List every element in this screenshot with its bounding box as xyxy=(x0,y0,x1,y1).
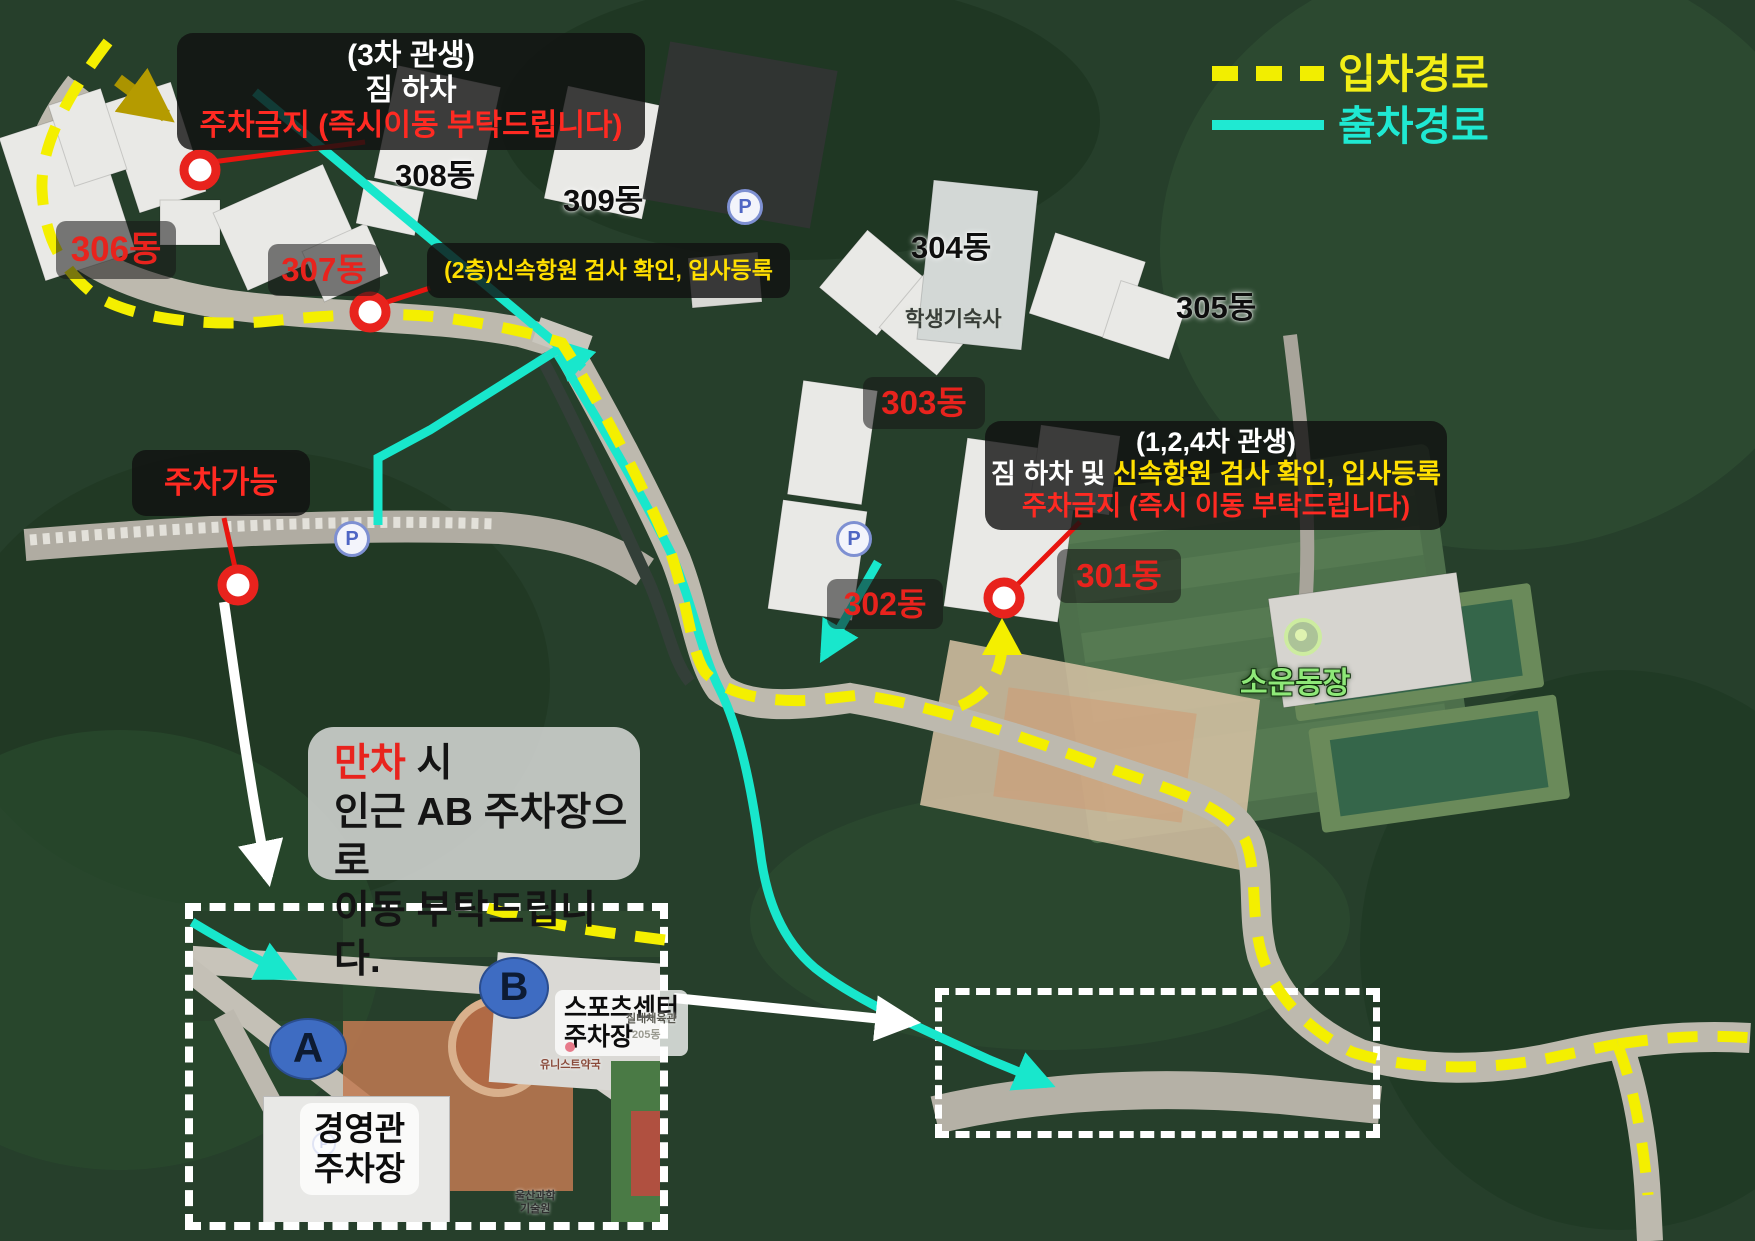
inset-pharmacy-label: 유니스트약국 xyxy=(540,1056,601,1072)
inset-univ-label: 울산과학 기술원 xyxy=(515,1190,555,1216)
campus-parking-map: 입차경로 출차경로 (3차 관생) 짐 하차 주차금지 (즉시이동 부탁드립니다… xyxy=(0,0,1755,1241)
legend-entry-line xyxy=(1212,66,1324,81)
legend-exit-label: 출차경로 xyxy=(1338,104,1489,148)
label-301: 301동 xyxy=(1057,549,1181,603)
note-124-line2b: 신속항원 검사 확인, 입사등록 xyxy=(1113,459,1441,489)
inset-mgmt-line1: 경영관 xyxy=(314,1109,405,1149)
note-2f-text: (2층)신속항원 검사 확인, 입사등록 xyxy=(444,257,773,283)
parking-icon-3: P xyxy=(334,521,370,557)
field-icon xyxy=(1284,618,1322,656)
inset-gym-label: 실내체육관 xyxy=(626,1010,677,1026)
label-308: 308동 xyxy=(395,150,475,195)
parking-icon-1: P xyxy=(727,189,763,225)
inset-mgmt-label: 경영관 주차장 xyxy=(300,1103,419,1195)
note-2f-box: (2층)신속항원 검사 확인, 입사등록 xyxy=(427,243,790,298)
inset-marker-b: B xyxy=(479,957,549,1019)
full-notice-line1: 만차 시 xyxy=(334,739,640,788)
inset-mgmt-line2: 주차장 xyxy=(314,1149,405,1189)
inset-205-label: 205동 xyxy=(632,1026,660,1042)
parking-ok-text: 주차가능 xyxy=(164,465,278,500)
field-icon-core xyxy=(1295,629,1307,641)
entry-arrowhead-301 xyxy=(982,618,1022,655)
note-124-line1: (1,2,4차 관생) xyxy=(985,426,1447,458)
label-304: 304동 xyxy=(911,222,991,267)
legend-entry-label: 입차경로 xyxy=(1338,52,1489,96)
note-3cha-line2: 짐 하차 xyxy=(177,73,645,108)
label-302: 302동 xyxy=(827,579,943,629)
parking-ok-box: 주차가능 xyxy=(132,450,310,516)
note-124-line2a: 짐 하차 및 xyxy=(991,459,1113,489)
full-notice-line2: 인근 AB 주차장으로 xyxy=(334,788,640,886)
full-notice-rest: 시 xyxy=(406,742,453,785)
label-dorm-area: 학생기숙사 xyxy=(905,303,1002,333)
full-notice-word: 만차 xyxy=(334,742,406,785)
leader-lines xyxy=(212,142,1080,586)
parking-icon-2: P xyxy=(836,521,872,557)
note-124-box: (1,2,4차 관생) 짐 하차 및 신속항원 검사 확인, 입사등록 주차금지… xyxy=(985,421,1447,530)
pharmacy-dot-icon xyxy=(565,1042,575,1052)
note-124-line2: 짐 하차 및 신속항원 검사 확인, 입사등록 xyxy=(985,458,1447,490)
note-3cha-box: (3차 관생) 짐 하차 주차금지 (즉시이동 부탁드립니다) xyxy=(177,33,645,150)
label-307: 307동 xyxy=(268,244,380,296)
note-124-line3: 주차금지 (즉시 이동 부탁드립니다) xyxy=(985,490,1447,522)
label-field: 소운동장 xyxy=(1240,658,1350,702)
inset-univ-line1: 울산과학 xyxy=(515,1190,555,1203)
unload-arrow xyxy=(118,80,166,116)
label-303: 303동 xyxy=(863,377,985,429)
legend-exit-line xyxy=(1212,120,1324,130)
inset-sports-line2: 주차장 xyxy=(564,1023,679,1052)
label-309: 309동 xyxy=(563,175,643,220)
label-305: 305동 xyxy=(1176,282,1256,327)
full-notice-box: 만차 시 인근 AB 주차장으로 이동 부탁드립니다. xyxy=(308,727,640,880)
note-3cha-line3: 주차금지 (즉시이동 부탁드립니다) xyxy=(177,108,645,143)
note-3cha-line1: (3차 관생) xyxy=(177,38,645,73)
label-306: 306동 xyxy=(56,221,176,279)
inset-univ-line2: 기술원 xyxy=(515,1203,555,1216)
inset-marker-a: A xyxy=(269,1018,347,1080)
